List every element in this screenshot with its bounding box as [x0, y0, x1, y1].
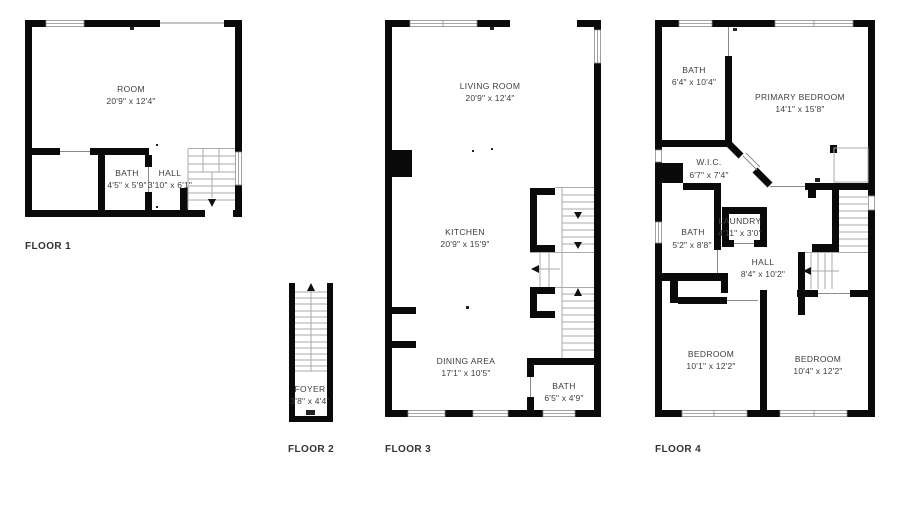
- room-dims-bath-top: 6'4" x 10'4": [672, 77, 716, 87]
- stair-left-arrow: [531, 265, 539, 273]
- room-dims-foyer: 3'8" x 4'4": [290, 396, 329, 406]
- floor-4-openings: [718, 27, 869, 301]
- floor-2-stairs: [295, 283, 327, 371]
- room-label-hall-f4: HALL: [752, 257, 775, 267]
- room-label-bath-f3: BATH: [552, 381, 575, 391]
- room-label-bath-top: BATH: [682, 65, 705, 75]
- floor-3-stairs: [530, 188, 594, 359]
- floor-1-plan: ROOM 20'9" x 12'4" BATH 4'5" x 5'9" HALL…: [25, 20, 242, 252]
- room-dims-wic: 6'7" x 7'4": [689, 170, 728, 180]
- room-label-primary-bedroom: PRIMARY BEDROOM: [755, 92, 845, 102]
- room-label-wic: W.I.C.: [696, 157, 721, 167]
- room-dims-kitchen: 20'9" x 15'9": [440, 239, 489, 249]
- floorplan-page: ROOM 20'9" x 12'4" BATH 4'5" x 5'9" HALL…: [0, 0, 900, 529]
- stair-up-arrow: [307, 283, 315, 291]
- room-label-foyer: FOYER: [294, 384, 325, 394]
- room-dims-bath-mid: 5'2" x 8'8": [672, 240, 711, 250]
- room-dims-room: 20'9" x 12'4": [106, 96, 155, 106]
- floor-2-plan: FOYER 3'8" x 4'4" FLOOR 2: [288, 283, 334, 455]
- room-label-dining-area: DINING AREA: [437, 356, 496, 366]
- room-dims-living-room: 20'9" x 12'4": [465, 93, 514, 103]
- room-dims-bath-f3: 6'5" x 4'9": [544, 393, 583, 403]
- closet-outline: [834, 148, 868, 182]
- room-label-bath-f1: BATH: [115, 168, 138, 178]
- room-label-room: ROOM: [117, 84, 145, 94]
- room-dims-laundry: 4'11" x 3'0": [718, 228, 762, 238]
- floor-3-plan: LIVING ROOM 20'9" x 12'4" KITCHEN 20'9" …: [385, 20, 601, 455]
- room-dims-hall-f4: 8'4" x 10'2": [741, 269, 785, 279]
- room-label-kitchen: KITCHEN: [445, 227, 485, 237]
- room-dims-bath-f1: 4'5" x 5'9": [107, 180, 146, 190]
- stair-down-arrow: [208, 199, 216, 207]
- room-dims-bedroom-right: 10'4" x 12'2": [793, 366, 842, 376]
- room-label-bedroom-right: BEDROOM: [795, 354, 841, 364]
- room-label-hall-f1: HALL: [159, 168, 182, 178]
- floor-4-labels: BATH 6'4" x 10'4" PRIMARY BEDROOM 14'1" …: [655, 65, 845, 455]
- floor-plans-canvas: ROOM 20'9" x 12'4" BATH 4'5" x 5'9" HALL…: [0, 0, 900, 529]
- room-label-bath-mid: BATH: [681, 227, 704, 237]
- floor-label-3: FLOOR 3: [385, 444, 431, 455]
- room-label-laundry: LAUNDRY: [719, 216, 762, 226]
- room-dims-hall-f1: 3'10" x 6'1": [148, 180, 192, 190]
- floor-3-labels: LIVING ROOM 20'9" x 12'4" KITCHEN 20'9" …: [385, 81, 584, 455]
- room-label-bedroom-left: BEDROOM: [688, 349, 734, 359]
- stair-down-arrow: [574, 242, 582, 249]
- room-dims-bedroom-left: 10'1" x 12'2": [686, 361, 735, 371]
- floor-1-openings: [60, 23, 224, 192]
- floor-label-1: FLOOR 1: [25, 241, 71, 252]
- floor-1-labels: ROOM 20'9" x 12'4" BATH 4'5" x 5'9" HALL…: [25, 84, 192, 252]
- floor-label-4: FLOOR 4: [655, 444, 701, 455]
- room-label-living-room: LIVING ROOM: [460, 81, 521, 91]
- floor-4-plan: BATH 6'4" x 10'4" PRIMARY BEDROOM 14'1" …: [655, 20, 875, 455]
- stair-up-arrow: [574, 288, 582, 296]
- room-dims-dining-area: 17'1" x 10'5": [441, 368, 490, 378]
- room-dims-primary-bedroom: 14'1" x 15'8": [775, 104, 824, 114]
- floor-label-2: FLOOR 2: [288, 444, 334, 455]
- floor-1-stairs: [188, 149, 235, 210]
